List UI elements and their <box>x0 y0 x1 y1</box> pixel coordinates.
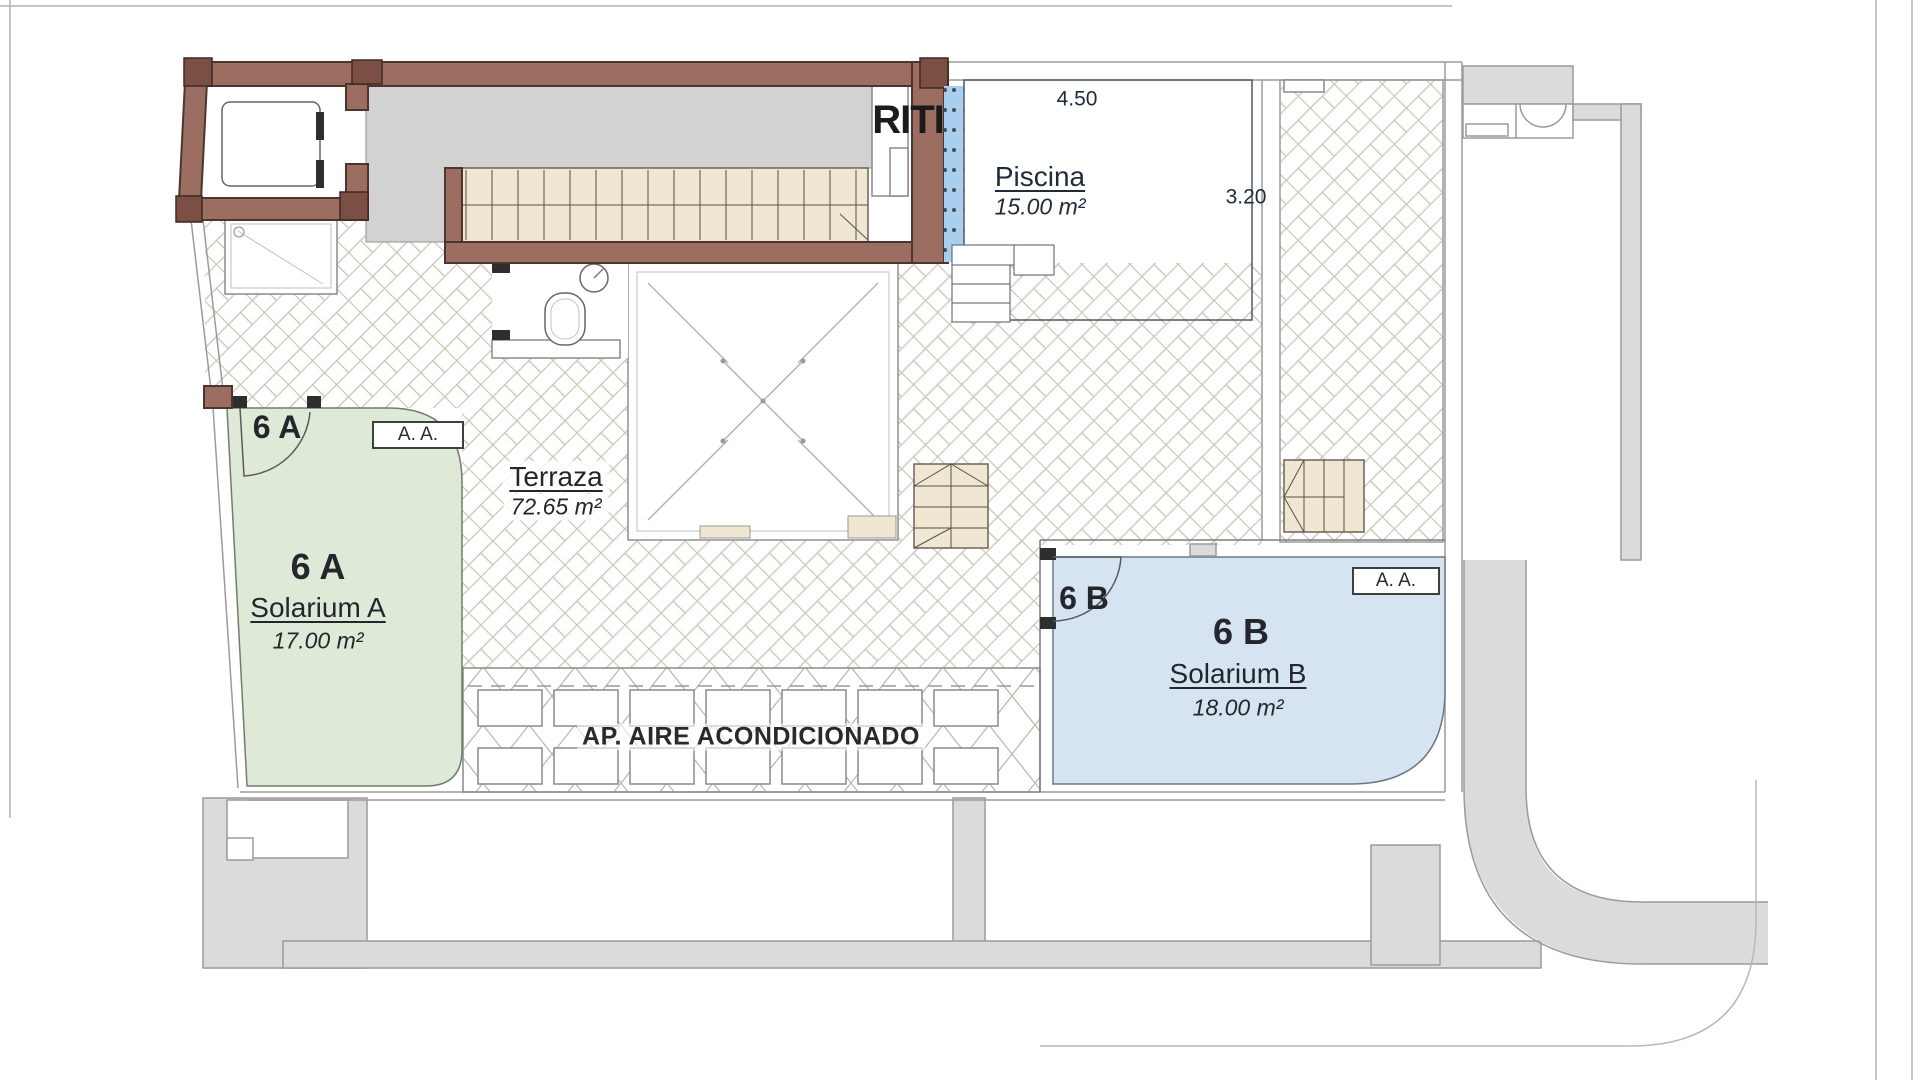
riti-label: RITI <box>872 100 944 140</box>
unit-b-door-label: 6 B <box>1059 582 1109 614</box>
solarium-b-label: Solarium B <box>1170 660 1307 688</box>
floor-plan: RITI Piscina 15.00 m² 4.50 3.20 Terraza … <box>0 0 1920 1080</box>
door-jamb <box>1040 617 1056 629</box>
pool-depth-dimension: 3.20 <box>1226 187 1267 208</box>
solarium-b-area-label: 18.00 m² <box>1193 697 1284 720</box>
bathroom <box>492 263 628 358</box>
pool-width-dimension: 4.50 <box>1057 89 1098 110</box>
unit-a-door-label: 6 A <box>253 411 302 443</box>
floor-plan-drawing <box>0 0 1920 1080</box>
door-jamb <box>307 396 321 408</box>
rooflight <box>225 218 337 294</box>
door-jamb <box>492 263 510 273</box>
terrace-area-label: 72.65 m² <box>504 494 609 521</box>
pool-label: Piscina <box>995 163 1085 191</box>
skylight <box>628 263 898 540</box>
wall-pillar <box>204 386 232 408</box>
door-jamb <box>233 396 247 408</box>
pool-edge-dots <box>944 86 964 262</box>
toilet-icon <box>545 293 585 345</box>
solarium-a-label: Solarium A <box>250 594 385 622</box>
unit-b-label: 6 B <box>1213 614 1269 650</box>
terrace-stair-2 <box>1284 460 1364 532</box>
elevator <box>222 102 324 188</box>
terrace-stair-1 <box>914 464 988 548</box>
pool-area-label: 15.00 m² <box>995 196 1086 219</box>
ac-badge-a: A. A. <box>372 421 464 449</box>
staircase <box>462 168 868 242</box>
ac-units-label: AP. AIRE ACONDICIONADO <box>577 724 925 751</box>
unit-a-label: 6 A <box>291 549 346 585</box>
door-jamb <box>1040 548 1056 560</box>
door-jamb <box>492 330 510 340</box>
ac-badge-b: A. A. <box>1352 567 1440 595</box>
terrace-label: Terraza <box>502 461 609 493</box>
vent-icon <box>580 264 608 292</box>
solarium-a-area-label: 17.00 m² <box>273 630 364 653</box>
